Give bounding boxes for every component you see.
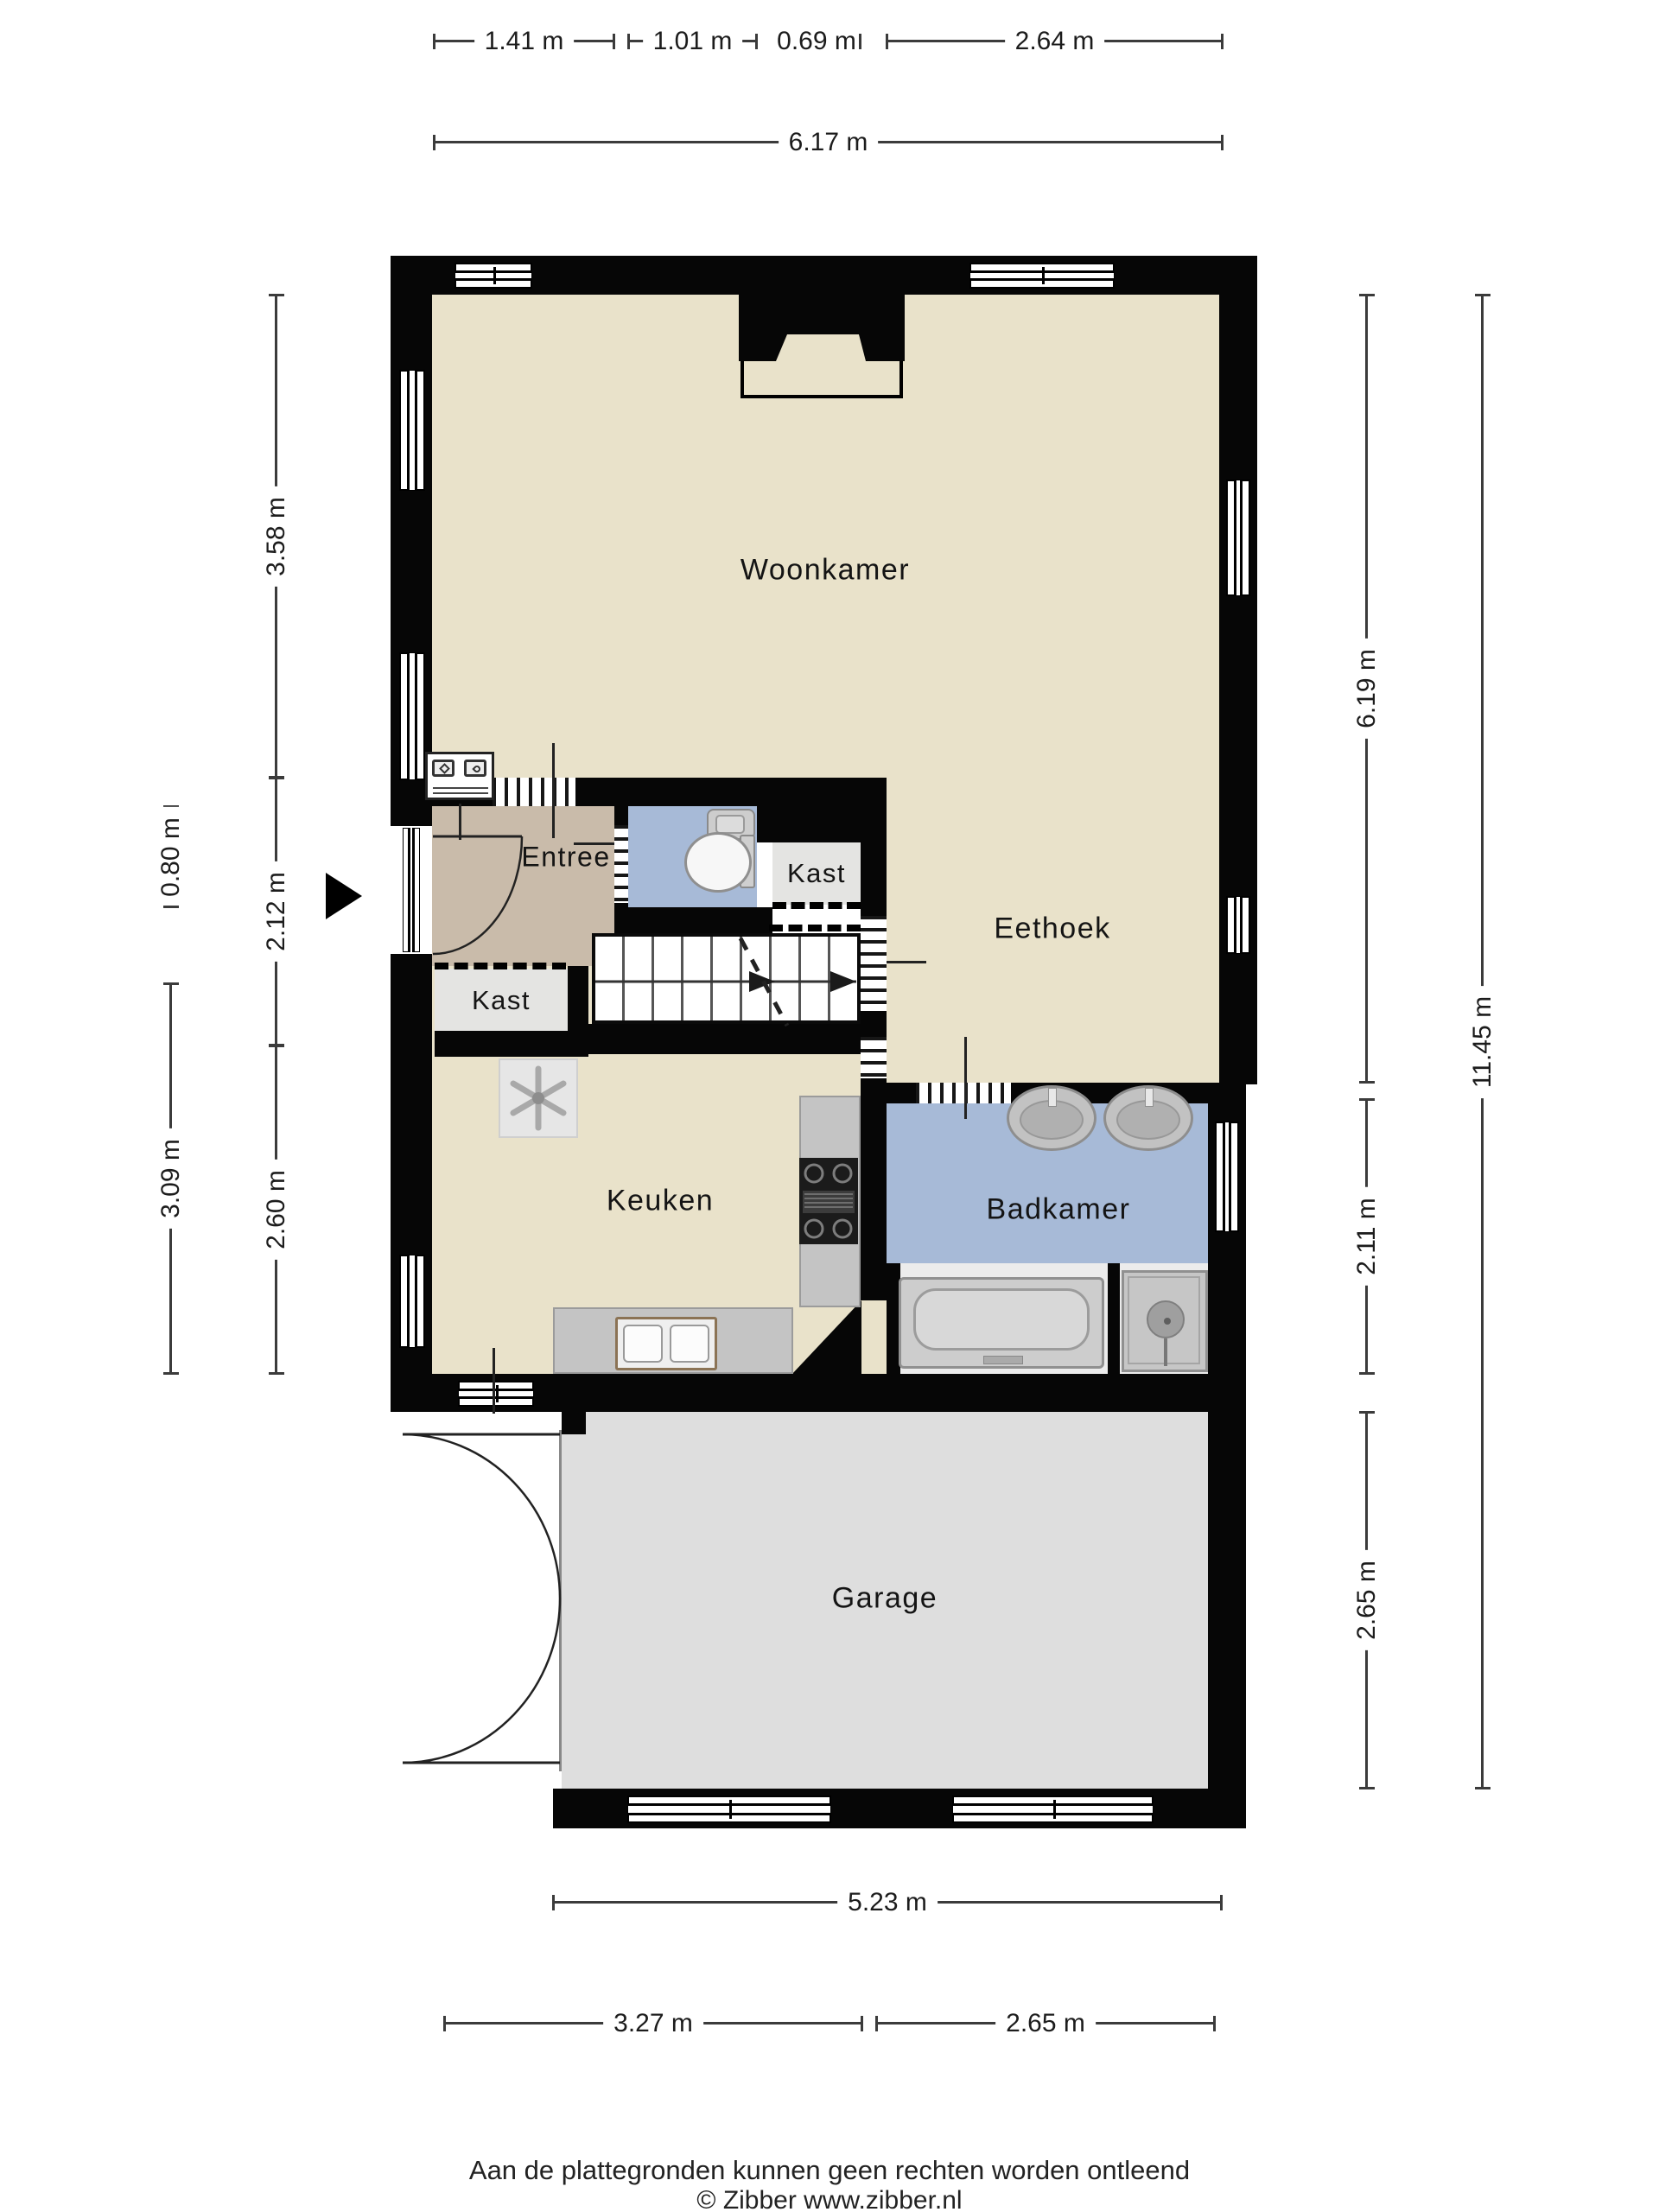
dim-top-total: 6.17 m <box>434 141 1223 143</box>
bathroom-sink-1-icon <box>1007 1085 1096 1151</box>
dim-bottom-1: 3.27 m <box>444 2022 862 2024</box>
dim-label: 5.23 m <box>837 1888 938 1917</box>
dim-label: 2.12 m <box>262 861 291 962</box>
faucet-icon <box>1145 1088 1154 1107</box>
dim-top-2: 1.01 m <box>628 40 757 42</box>
opening-keuken-eethoek <box>861 1037 887 1078</box>
opening-toilet-door <box>614 825 628 903</box>
dim-bottom-total: 5.23 m <box>553 1901 1222 1904</box>
dim-label: 3.27 m <box>603 2009 703 2038</box>
dim-label: 0.80 m <box>156 807 186 907</box>
window-right-badkamer <box>1215 1122 1239 1232</box>
shower-icon <box>1122 1270 1208 1372</box>
ventilation-unit <box>499 1058 578 1138</box>
entrance-arrow-icon <box>326 873 362 919</box>
opening-tick <box>552 743 555 838</box>
window-right-eethoek <box>1226 896 1250 954</box>
toilet-sink-basin <box>715 815 745 834</box>
window-garage-1 <box>627 1796 831 1823</box>
dim-label: 2.65 m <box>995 2009 1096 2038</box>
kitchen-sink-icon <box>615 1317 717 1370</box>
shower-pipe <box>1164 1338 1167 1366</box>
front-door-frame <box>403 828 420 952</box>
stairs-direction <box>595 937 864 1027</box>
dashed-stairs-overhang <box>769 925 861 931</box>
sink-basin-right <box>670 1325 709 1363</box>
dim-label: 6.17 m <box>779 128 879 157</box>
footer-disclaimer: Aan de plattegronden kunnen geen rechten… <box>0 2155 1659 2186</box>
dim-right-outer: 11.45 m <box>1481 295 1484 1789</box>
label-keuken: Keuken <box>607 1185 714 1218</box>
bathroom-sink-2-icon <box>1103 1085 1193 1151</box>
dim-right-inner-2: 2.11 m <box>1365 1099 1368 1374</box>
window-top-left <box>454 263 532 289</box>
wall-toilet-bottom <box>614 907 772 933</box>
garage-doors-swing-icon <box>397 1426 566 1771</box>
fan-icon <box>500 1060 576 1136</box>
chimney-recess <box>739 256 905 404</box>
dim-top-4: 2.64 m <box>887 40 1223 42</box>
label-kast-upper: Kast <box>787 858 846 889</box>
opening-hall-eethoek <box>861 916 887 1011</box>
shower-drain-dot <box>1164 1318 1171 1325</box>
bathtub-faucet <box>983 1356 1023 1364</box>
dim-label: 1.41 m <box>474 27 575 56</box>
dim-right-inner-1: 6.19 m <box>1365 295 1368 1083</box>
dashed-kast-upper <box>772 902 861 909</box>
wall-right-upper <box>1219 256 1257 1084</box>
window-right-woonkamer <box>1226 480 1250 596</box>
dim-label: 2.11 m <box>1352 1187 1382 1286</box>
label-eethoek: Eethoek <box>994 912 1110 946</box>
water-meter-icon <box>464 760 486 777</box>
label-badkamer: Badkamer <box>987 1193 1131 1227</box>
floorplan-canvas: 1.41 m 1.01 m 0.69 m 2.64 m 6.17 m 3.58 … <box>0 0 1659 2212</box>
wall-kast-upper-top <box>757 778 861 842</box>
dim-label: 6.19 m <box>1352 639 1382 739</box>
meter-tick <box>459 804 461 840</box>
label-kast-lower: Kast <box>472 985 531 1016</box>
dim-left-inner-2: 2.12 m <box>275 778 277 1046</box>
sink-basin-left <box>623 1325 663 1363</box>
dim-top-1: 1.41 m <box>434 40 614 42</box>
dim-label: 2.64 m <box>1005 27 1105 56</box>
dim-left-outer-1: 0.80 m <box>169 806 172 907</box>
dim-left-inner-3: 2.60 m <box>275 1046 277 1374</box>
meter-drop-icon <box>472 764 481 773</box>
window-left-2 <box>399 652 425 780</box>
opening-badkamer-door <box>916 1083 1011 1103</box>
label-entree: Entree <box>521 842 610 874</box>
wall-below-stairs <box>568 1024 887 1054</box>
dashed-entree-kast <box>435 963 566 969</box>
dim-label: 3.58 m <box>262 486 291 587</box>
stove-icon <box>799 1158 858 1244</box>
bathtub-icon <box>899 1277 1104 1369</box>
wall-tub-shower-stub <box>1108 1263 1120 1374</box>
window-left-keuken <box>399 1255 425 1348</box>
footer-credit: © Zibber www.zibber.nl <box>0 2186 1659 2212</box>
dim-label: 3.09 m <box>156 1128 186 1229</box>
stairs <box>592 933 861 1024</box>
dim-label: 2.65 m <box>1352 1550 1382 1650</box>
window-garage-2 <box>952 1796 1154 1823</box>
faucet-icon <box>1048 1088 1057 1107</box>
toilet-bowl-icon <box>684 832 752 893</box>
dim-label: 11.45 m <box>1468 985 1497 1097</box>
dim-right-inner-3: 2.65 m <box>1365 1412 1368 1789</box>
dim-label: 0.69 m <box>766 27 867 56</box>
opening-entree-woonkamer <box>493 778 575 806</box>
window-left-1 <box>399 370 425 491</box>
dim-label: 1.01 m <box>643 27 743 56</box>
dim-top-3: 0.69 m <box>772 40 861 42</box>
wall-kast-lower-bottom <box>435 1031 588 1057</box>
dim-label: 2.60 m <box>262 1160 291 1260</box>
dim-left-inner-1: 3.58 m <box>275 295 277 778</box>
meter-diamond-icon <box>439 763 450 774</box>
window-top-right <box>969 263 1115 289</box>
bathtub-inner <box>913 1288 1090 1351</box>
dim-bottom-2: 2.65 m <box>876 2022 1215 2024</box>
label-garage: Garage <box>832 1582 938 1616</box>
electric-meter-icon <box>432 760 454 777</box>
label-woonkamer: Woonkamer <box>741 554 910 588</box>
opening-tick <box>887 961 926 963</box>
meter-cupboard <box>425 752 494 800</box>
window-tick <box>493 1348 495 1414</box>
meter-hatch <box>433 787 488 798</box>
opening-tick <box>964 1037 967 1119</box>
window-bottom-keuken <box>458 1381 534 1407</box>
dim-left-outer-2: 3.09 m <box>169 983 172 1374</box>
